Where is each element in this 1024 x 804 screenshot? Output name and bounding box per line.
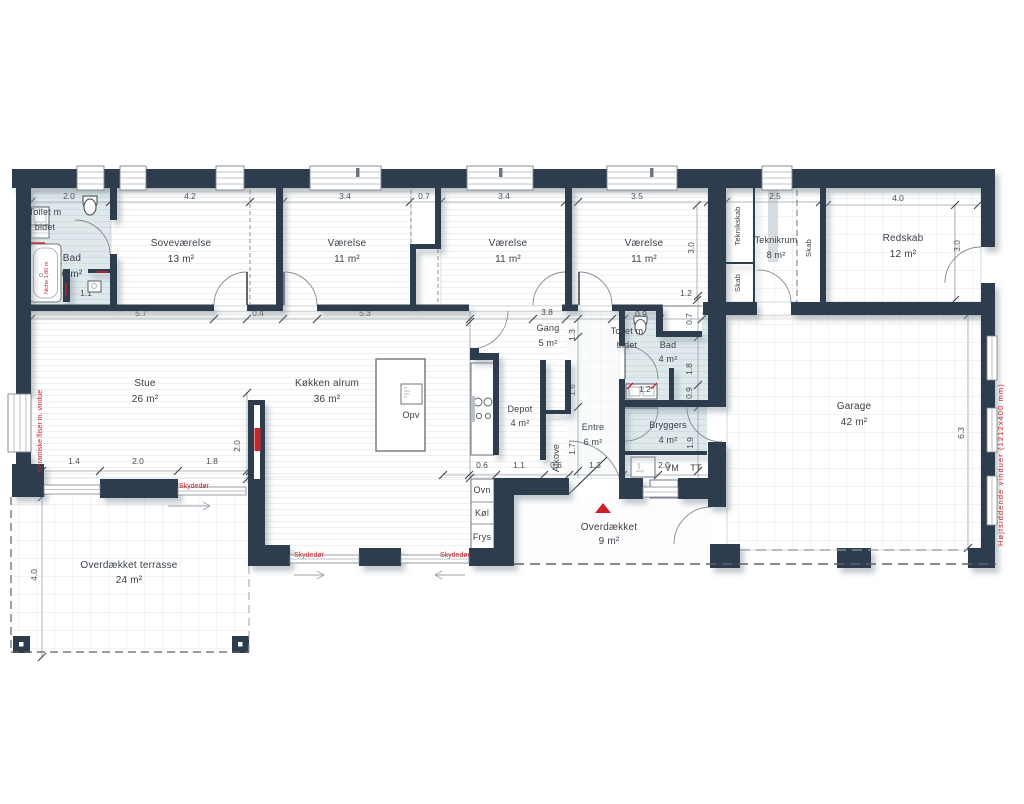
svg-text:6 m²: 6 m²: [62, 269, 83, 280]
svg-text:1.2: 1.2: [680, 288, 692, 298]
svg-text:Frys: Frys: [473, 532, 492, 542]
svg-text:4 m²: 4 m²: [659, 354, 678, 364]
svg-text:Garage: Garage: [837, 401, 872, 412]
svg-text:12 m²: 12 m²: [890, 249, 917, 260]
svg-text:Værelse: Værelse: [625, 238, 664, 249]
svg-text:4.0: 4.0: [29, 569, 39, 581]
svg-text:Skab: Skab: [804, 239, 813, 257]
svg-text:Skydedør: Skydedør: [179, 483, 210, 490]
svg-text:42 m²: 42 m²: [841, 417, 868, 428]
svg-text:3.0: 3.0: [952, 240, 962, 252]
svg-text:3.4: 3.4: [339, 191, 351, 201]
svg-text:3.0: 3.0: [686, 242, 696, 254]
svg-text:Opv: Opv: [402, 410, 419, 420]
svg-text:1.9: 1.9: [685, 437, 695, 449]
svg-text:24 m²: 24 m²: [116, 575, 143, 586]
svg-text:Højtsiddende vinduer (1212x400: Højtsiddende vinduer (1212x400 mm): [996, 383, 1005, 546]
svg-text:26 m²: 26 m²: [132, 394, 159, 405]
svg-text:2.0: 2.0: [63, 191, 75, 201]
svg-text:2.5: 2.5: [769, 191, 781, 201]
svg-text:Teknikskab: Teknikskab: [733, 206, 742, 245]
svg-text:1.4: 1.4: [68, 456, 80, 466]
svg-text:Depot: Depot: [507, 404, 532, 414]
svg-text:Ovn: Ovn: [473, 485, 490, 495]
svg-text:Alkove: Alkove: [551, 444, 561, 472]
svg-text:11 m²: 11 m²: [495, 254, 521, 265]
svg-text:1.8: 1.8: [684, 363, 694, 375]
svg-text:Teknikrum: Teknikrum: [755, 235, 798, 245]
svg-text:4.2: 4.2: [184, 191, 196, 201]
svg-text:0.7: 0.7: [418, 191, 430, 201]
svg-text:Redskab: Redskab: [883, 233, 924, 244]
svg-text:1.8: 1.8: [206, 456, 218, 466]
svg-text:36 m²: 36 m²: [314, 394, 341, 405]
svg-text:Soveværelse: Soveværelse: [151, 238, 212, 249]
svg-text:1.7: 1.7: [567, 443, 577, 455]
svg-text:Bad: Bad: [660, 340, 677, 350]
svg-text:Skydedør: Skydedør: [440, 552, 471, 559]
svg-text:1.2: 1.2: [639, 384, 651, 394]
svg-text:13 m²: 13 m²: [168, 254, 195, 265]
svg-text:6 m²: 6 m²: [584, 437, 603, 447]
svg-text:6.3: 6.3: [956, 427, 966, 439]
svg-text:Bad: Bad: [63, 253, 81, 264]
svg-text:4.0: 4.0: [892, 193, 904, 203]
svg-text:bidet: bidet: [35, 222, 56, 232]
svg-text:Køkken alrum: Køkken alrum: [295, 378, 359, 389]
svg-text:Skydedør: Skydedør: [294, 552, 325, 559]
svg-text:9 m²: 9 m²: [599, 536, 620, 547]
svg-text:Overdækket: Overdækket: [581, 522, 637, 533]
svg-text:3.4: 3.4: [498, 191, 510, 201]
svg-text:4 m²: 4 m²: [511, 418, 530, 428]
svg-text:8 m²: 8 m²: [767, 250, 786, 260]
svg-text:Gang: Gang: [537, 323, 560, 333]
svg-text:11 m²: 11 m²: [334, 254, 360, 265]
svg-text:3.5: 3.5: [631, 191, 643, 201]
svg-text:1.1: 1.1: [513, 460, 525, 470]
svg-text:Niche 1,80 m: Niche 1,80 m: [44, 261, 50, 294]
svg-text:11 m²: 11 m²: [631, 254, 657, 265]
svg-text:Stue: Stue: [134, 378, 156, 389]
svg-text:4 m²: 4 m²: [659, 435, 678, 445]
svg-text:0.6: 0.6: [476, 460, 488, 470]
svg-text:Bryggers: Bryggers: [649, 420, 687, 430]
svg-text:bidet: bidet: [617, 340, 638, 350]
svg-text:Toilet m: Toilet m: [611, 326, 644, 336]
svg-text:Keramiske fliser m. vindue: Keramiske fliser m. vindue: [37, 390, 44, 472]
svg-text:0.9: 0.9: [635, 309, 647, 319]
svg-text:Entre: Entre: [582, 422, 605, 432]
svg-text:2.0: 2.0: [232, 440, 242, 452]
svg-text:Overdækket terrasse: Overdækket terrasse: [80, 560, 177, 571]
svg-text:Værelse: Værelse: [328, 238, 367, 249]
svg-text:VM: VM: [665, 463, 679, 473]
svg-text:2.0: 2.0: [132, 456, 144, 466]
svg-text:Skab: Skab: [733, 274, 742, 292]
svg-text:3.8: 3.8: [541, 307, 553, 317]
svg-text:0.9: 0.9: [684, 387, 694, 399]
svg-text:0.7: 0.7: [684, 313, 694, 325]
svg-text:Værelse: Værelse: [489, 238, 528, 249]
svg-text:5 m²: 5 m²: [539, 338, 558, 348]
svg-text:TT: TT: [690, 463, 702, 473]
svg-text:Køl: Køl: [475, 508, 489, 518]
svg-text:Toilet m: Toilet m: [29, 207, 62, 217]
